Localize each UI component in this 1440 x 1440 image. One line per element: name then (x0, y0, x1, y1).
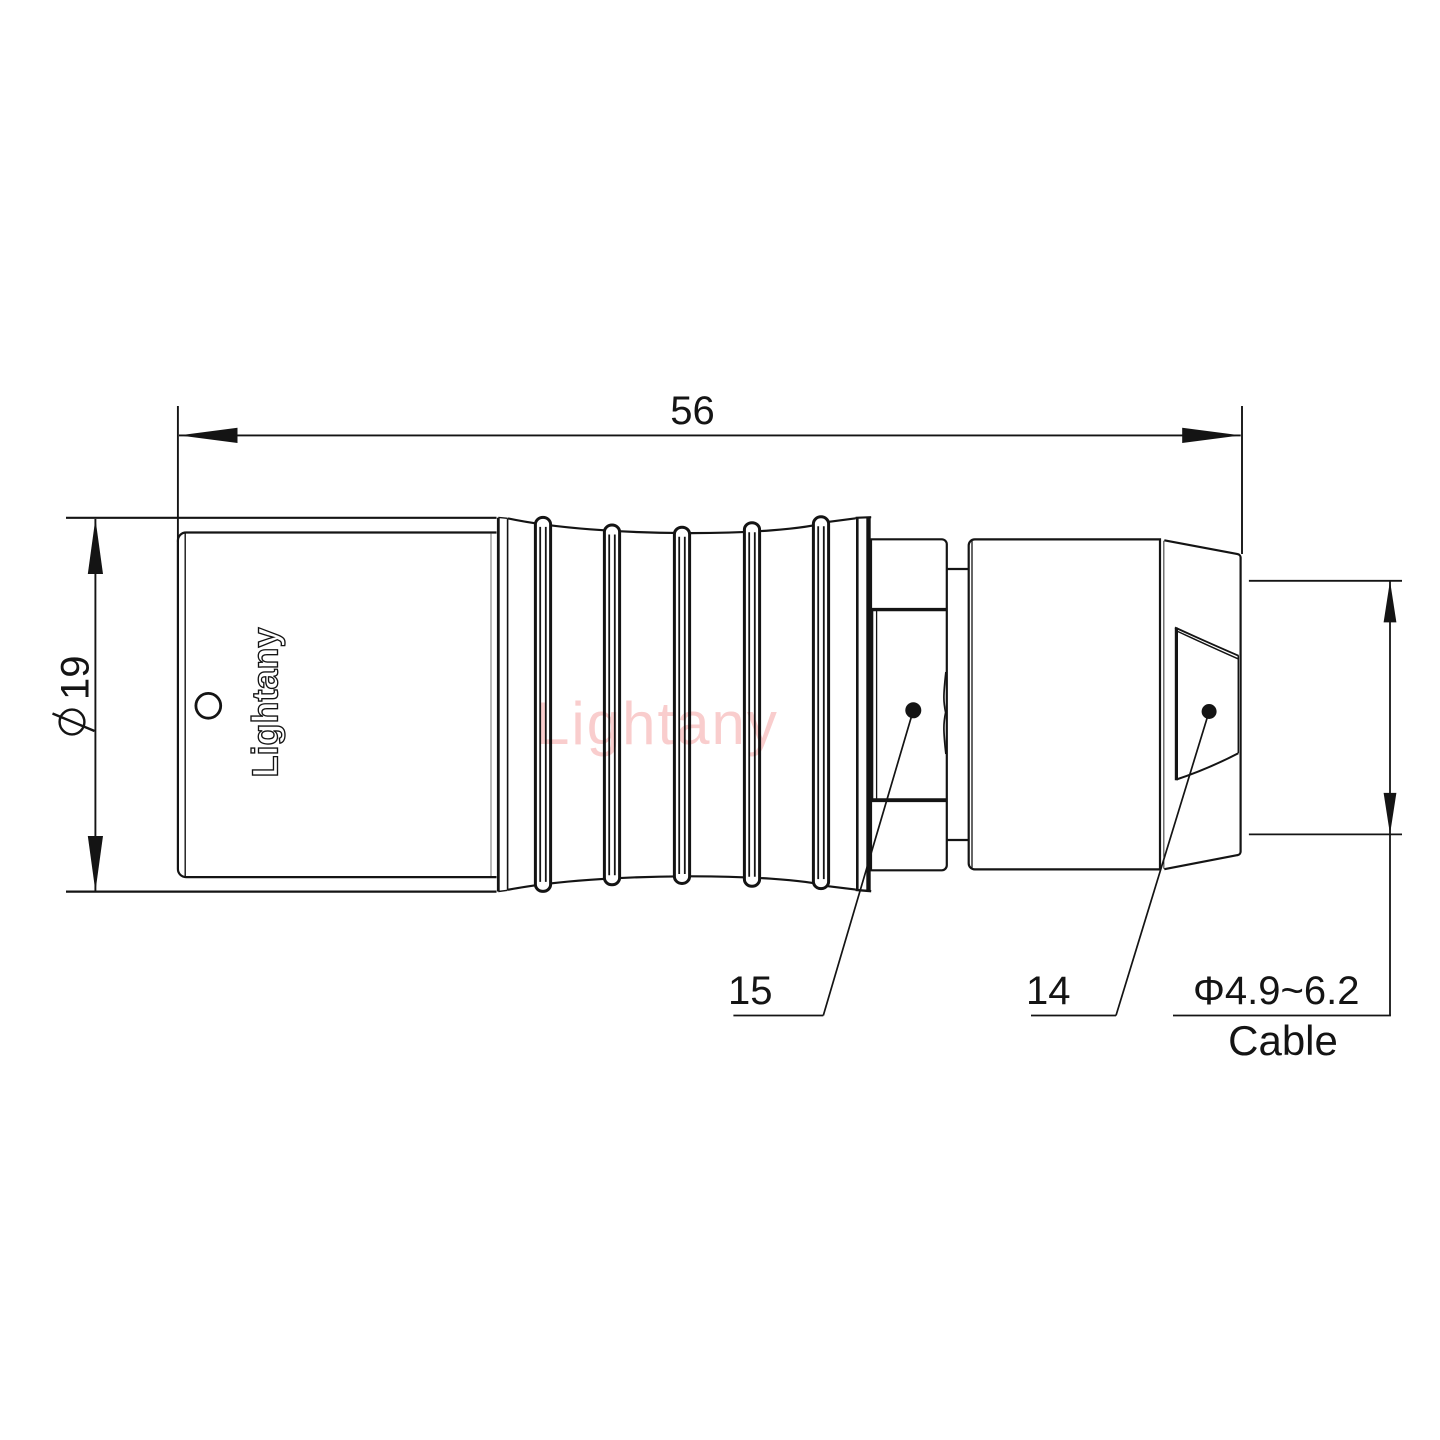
svg-text:Cable: Cable (1228, 1017, 1338, 1064)
svg-text:Φ4.9~6.2: Φ4.9~6.2 (1193, 969, 1359, 1013)
svg-text:19: 19 (54, 656, 98, 701)
svg-text:Lightany: Lightany (245, 628, 286, 778)
svg-text:56: 56 (670, 389, 715, 433)
svg-text:Lightany: Lightany (536, 690, 779, 757)
svg-text:14: 14 (1026, 969, 1071, 1013)
svg-text:15: 15 (728, 969, 773, 1013)
